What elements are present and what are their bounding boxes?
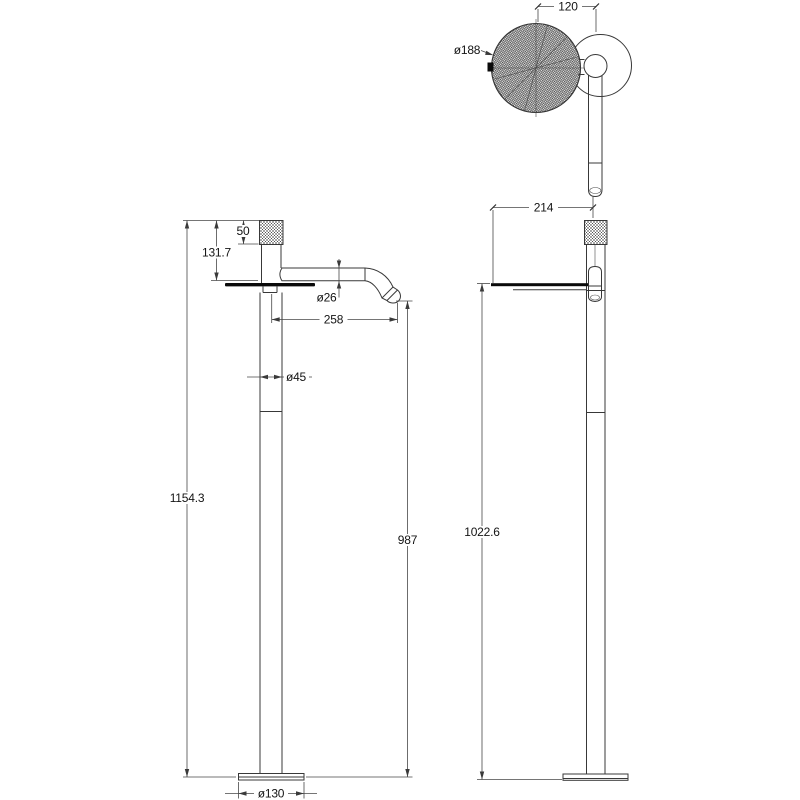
handle-side — [589, 245, 602, 302]
dim-text-top-to-spout: 131.7 — [202, 246, 232, 260]
dim-spout-diameter: ø26 — [313, 259, 341, 305]
dim-text-knob-height: 50 — [237, 224, 250, 238]
dim-text-tray-depth: 214 — [534, 201, 554, 215]
dim-text-overall-height: 1154.3 — [170, 491, 205, 505]
dim-tray-height: 1022.6 — [459, 284, 562, 780]
dim-text-tray-height: 1022.6 — [464, 525, 500, 539]
knob-side — [585, 221, 608, 245]
knob-front — [260, 221, 284, 245]
dim-text-spout-outlet-height: 987 — [398, 533, 418, 547]
dim-text-base-diameter: ø130 — [258, 787, 285, 800]
dim-spout-outlet-height: 987 — [306, 301, 422, 777]
dim-text-head-diameter: ø188 — [454, 43, 481, 57]
dim-text-column-diameter: ø45 — [286, 370, 307, 384]
dim-overall-height: 1154.3 — [164, 221, 236, 778]
dim-head-diameter: ø188 — [454, 43, 494, 57]
tray-front — [225, 283, 315, 286]
index-notch — [488, 63, 494, 72]
knurled-head-top — [488, 19, 586, 117]
dim-text-handle-offset: 120 — [558, 0, 578, 14]
dim-tray-depth: 214 — [490, 196, 596, 283]
pivot-circle — [584, 55, 607, 78]
dim-base-diameter: ø130 — [225, 782, 317, 800]
base-front — [239, 774, 305, 781]
base-side — [563, 774, 628, 780]
faucet-technical-drawing: 120 ø188 — [0, 0, 800, 800]
front-view: 50 131.7 ø26 258 — [164, 221, 422, 800]
tray-side — [491, 283, 588, 286]
dim-knob-height: 50 — [233, 221, 259, 245]
dim-column-diameter: ø45 — [247, 370, 312, 384]
lever-shaft-top — [589, 74, 603, 197]
dim-text-spout-reach: 258 — [324, 313, 344, 327]
side-view: 214 1022.6 — [459, 196, 628, 780]
top-view: 120 ø188 — [454, 0, 632, 197]
technical-drawing-page: 120 ø188 — [0, 0, 800, 800]
dim-text-spout-diameter: ø26 — [316, 291, 337, 305]
